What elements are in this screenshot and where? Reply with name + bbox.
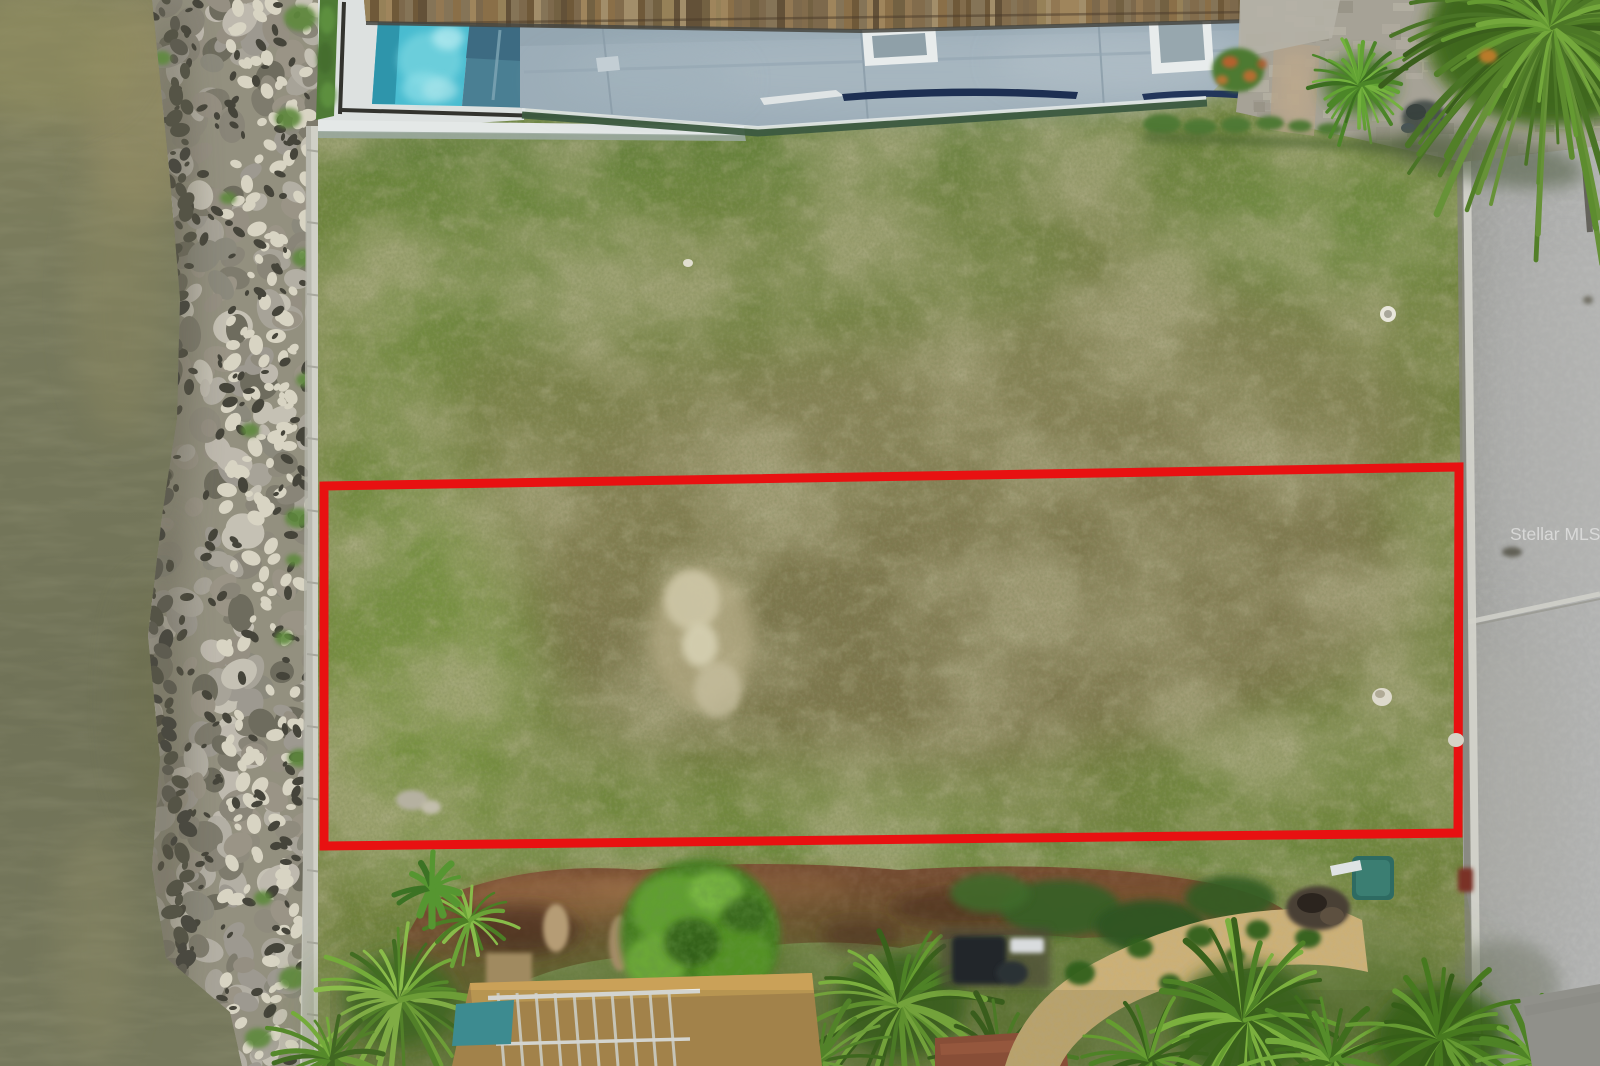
svg-text:Stellar MLS: Stellar MLS — [1510, 524, 1600, 544]
